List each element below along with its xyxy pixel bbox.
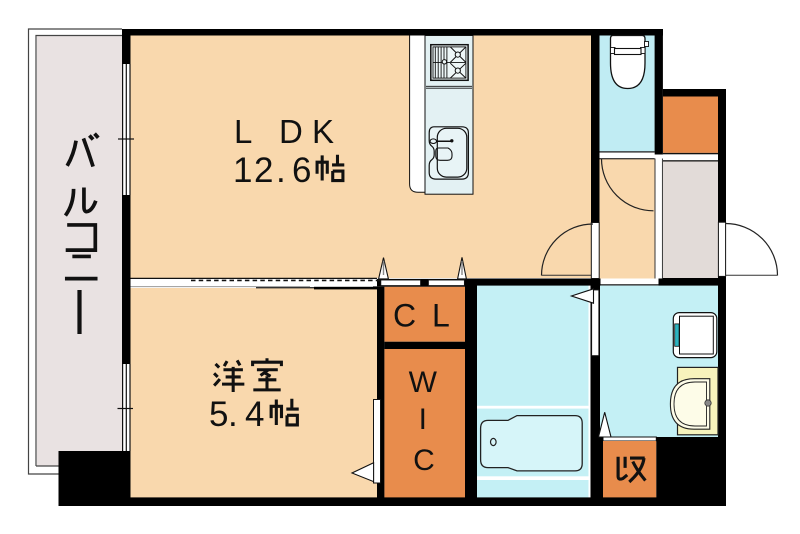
svg-text:6: 6 <box>292 151 311 190</box>
svg-text:W: W <box>409 366 438 399</box>
svg-text:.: . <box>228 395 238 434</box>
svg-text:L: L <box>432 298 450 334</box>
svg-text:C: C <box>413 444 435 477</box>
svg-text:D: D <box>279 113 303 150</box>
svg-text:.: . <box>276 151 286 190</box>
svg-text:C: C <box>393 298 416 334</box>
svg-text:K: K <box>312 113 334 150</box>
svg-text:2: 2 <box>254 151 273 190</box>
svg-text:I: I <box>419 403 427 436</box>
svg-text:L: L <box>234 113 252 150</box>
svg-text:4: 4 <box>245 395 264 434</box>
svg-text:5: 5 <box>209 395 228 434</box>
svg-text:1: 1 <box>233 151 252 190</box>
